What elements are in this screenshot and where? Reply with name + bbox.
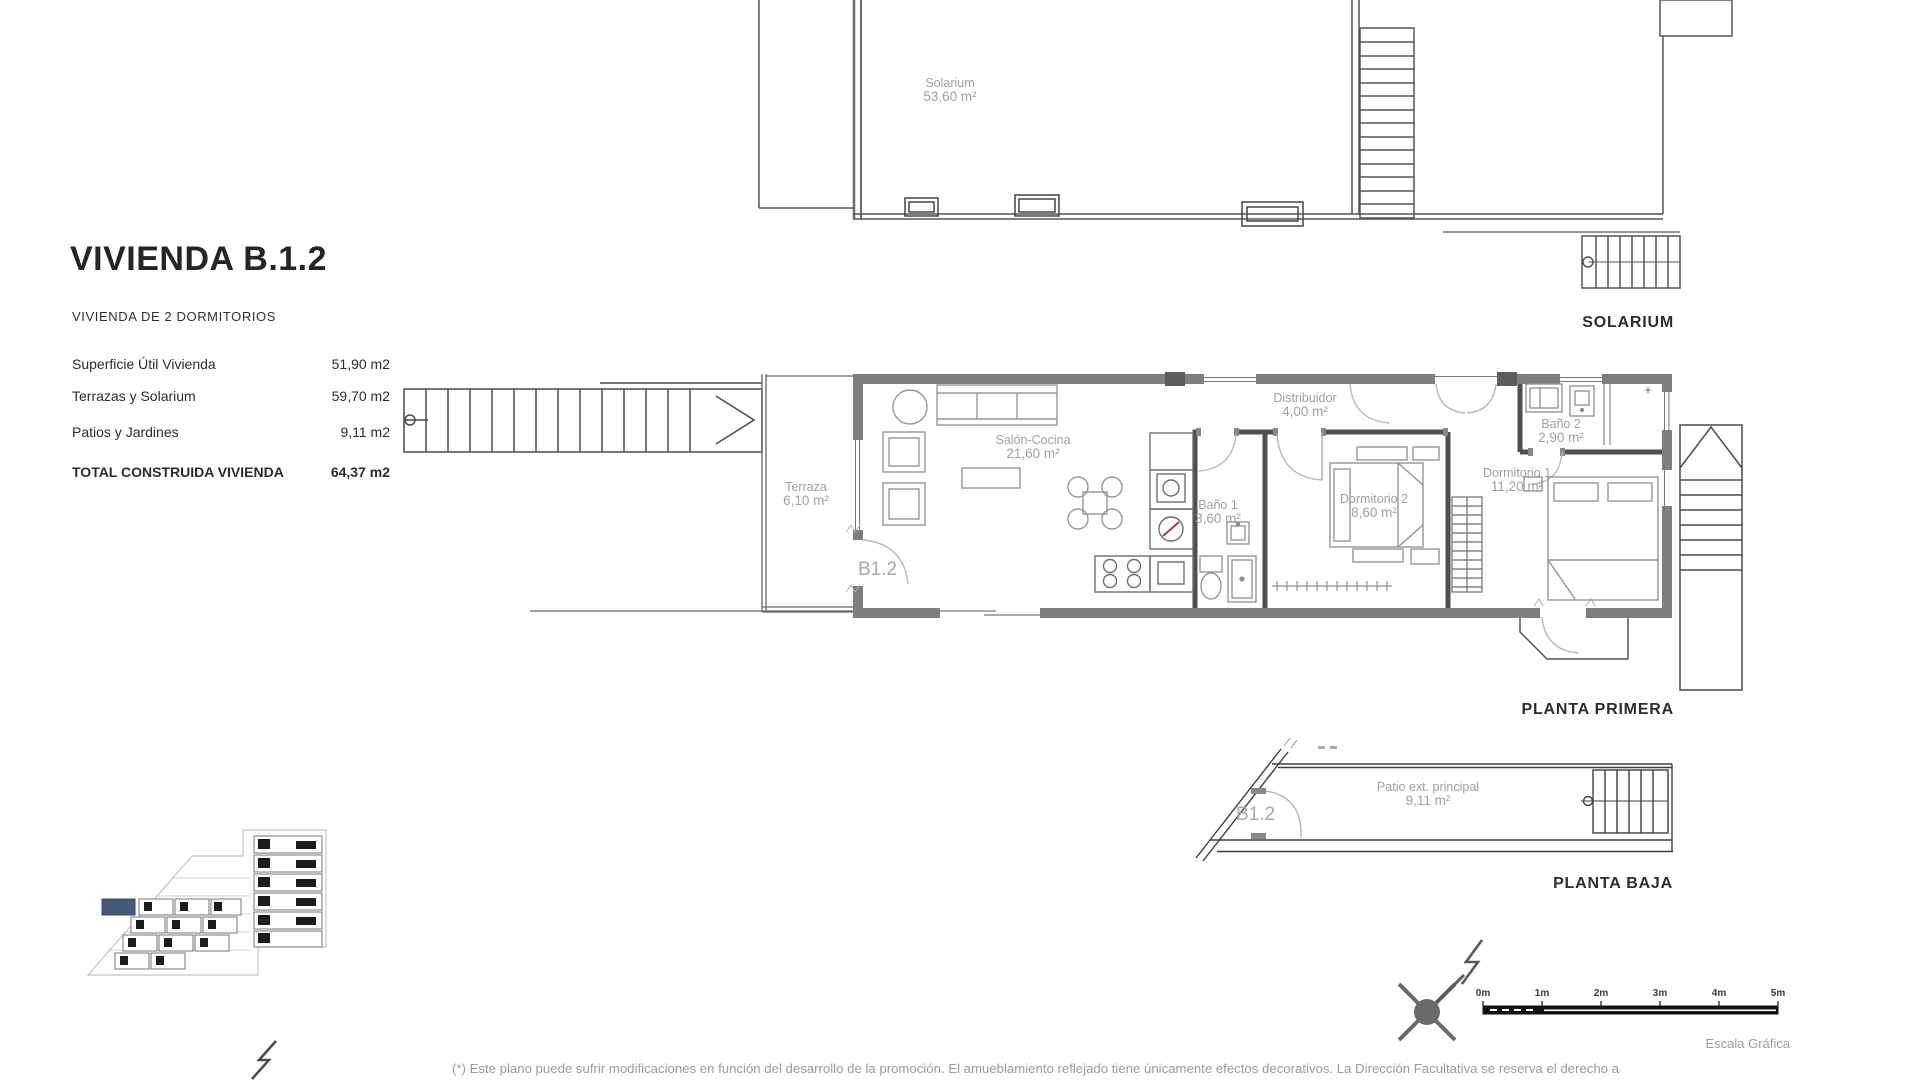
unit-label-first-floor: B1.2	[858, 559, 897, 581]
page-subtitle: VIVIENDA DE 2 DORMITORIOS	[72, 309, 276, 324]
solarium-lower-stairs	[1582, 236, 1680, 288]
disclaimer-footnote: (*) Este plano puede sufrir modificacion…	[452, 1061, 1619, 1076]
caption-solarium: SOLARIUM	[1582, 314, 1674, 332]
area-row-value: 9,11 m2	[340, 424, 390, 440]
room-label-solarium: Solarium 53,60 m²	[923, 76, 976, 104]
room-label-bano1: Baño 1 3,60 m²	[1195, 498, 1241, 526]
wardrobe	[1452, 497, 1482, 592]
interior-partitions	[1193, 384, 1662, 608]
solarium-plan-drawing	[759, 0, 1732, 288]
room-label-distribuidor: Distribuidor 4,00 m²	[1273, 391, 1336, 419]
solarium-chimneys	[905, 195, 1303, 226]
scale-bar-drawing	[1483, 1001, 1778, 1014]
scale-tick-2m: 2m	[1594, 988, 1608, 999]
area-row-label: Patios y Jardines	[72, 424, 179, 440]
room-label-patio: Patio ext. principal 9,11 m²	[1377, 780, 1479, 808]
area-row-label: Terrazas y Solarium	[72, 388, 196, 404]
scale-tick-0m: 0m	[1476, 988, 1490, 999]
site-plan-key-map	[88, 830, 326, 1079]
armchairs	[883, 432, 925, 525]
area-row-label: Superficie Útil Vivienda	[72, 356, 216, 372]
solarium-stairs	[1360, 28, 1414, 218]
closet-rail	[1272, 581, 1392, 591]
round-table	[893, 390, 927, 424]
room-label-bano2: Baño 2 2,90 m²	[1538, 417, 1584, 445]
scale-tick-5m: 5m	[1771, 988, 1785, 999]
living-room-furniture	[883, 385, 1193, 592]
scale-bar-caption: Escala Gráfica	[1705, 1036, 1790, 1051]
jamb-hatch-marks	[846, 525, 1595, 606]
room-label-terraza: Terraza 6,10 m²	[783, 480, 829, 508]
sofa	[937, 385, 1057, 425]
kitchen-counter	[1095, 433, 1193, 592]
area-row-util: Superficie Útil Vivienda 51,90 m2	[72, 356, 390, 372]
entry-stairs	[404, 383, 762, 452]
bed-dorm1	[1548, 477, 1658, 600]
caption-planta-baja: PLANTA BAJA	[1553, 875, 1673, 893]
coffee-table	[962, 468, 1020, 488]
page-title: VIVIENDA B.1.2	[70, 240, 327, 279]
scale-tick-1m: 1m	[1535, 988, 1549, 999]
caption-planta-primera: PLANTA PRIMERA	[1521, 701, 1674, 719]
area-row-label: TOTAL CONSTRUIDA VIVIENDA	[72, 464, 284, 480]
site-map-north-zigzag	[252, 1041, 276, 1079]
scale-tick-4m: 4m	[1712, 988, 1726, 999]
highlighted-unit	[102, 899, 135, 915]
bathroom1-fixtures	[1200, 522, 1256, 602]
area-row-value: 59,70 m2	[332, 388, 390, 404]
room-label-dormitorio1: Dormitorio 1 11,20 m²	[1483, 466, 1551, 494]
floor-plan-sheet: VIVIENDA B.1.2 VIVIENDA DE 2 DORMITORIOS…	[0, 0, 1920, 1080]
bedroom1-furniture	[1524, 477, 1658, 600]
dining-table	[1068, 477, 1122, 529]
area-row-value: 51,90 m2	[332, 356, 390, 372]
patio-stairs	[1581, 770, 1668, 833]
area-row-terrazas: Terrazas y Solarium 59,70 m2	[72, 388, 390, 404]
room-label-salon-cocina: Salón-Cocina 21,60 m²	[995, 433, 1070, 461]
unit-label-ground-floor: B1.2	[1236, 804, 1275, 826]
right-exterior-stairs	[1680, 425, 1742, 690]
room-label-dormitorio2: Dormitorio 2 8,60 m²	[1340, 492, 1408, 520]
area-row-value: 64,37 m2	[331, 464, 390, 480]
area-row-total: TOTAL CONSTRUIDA VIVIENDA 64,37 m2	[72, 464, 390, 480]
area-row-patios: Patios y Jardines 9,11 m2	[72, 424, 390, 440]
scale-tick-3m: 3m	[1653, 988, 1667, 999]
north-arrow-icon	[1399, 940, 1482, 1040]
plan-linework	[0, 0, 1920, 1080]
